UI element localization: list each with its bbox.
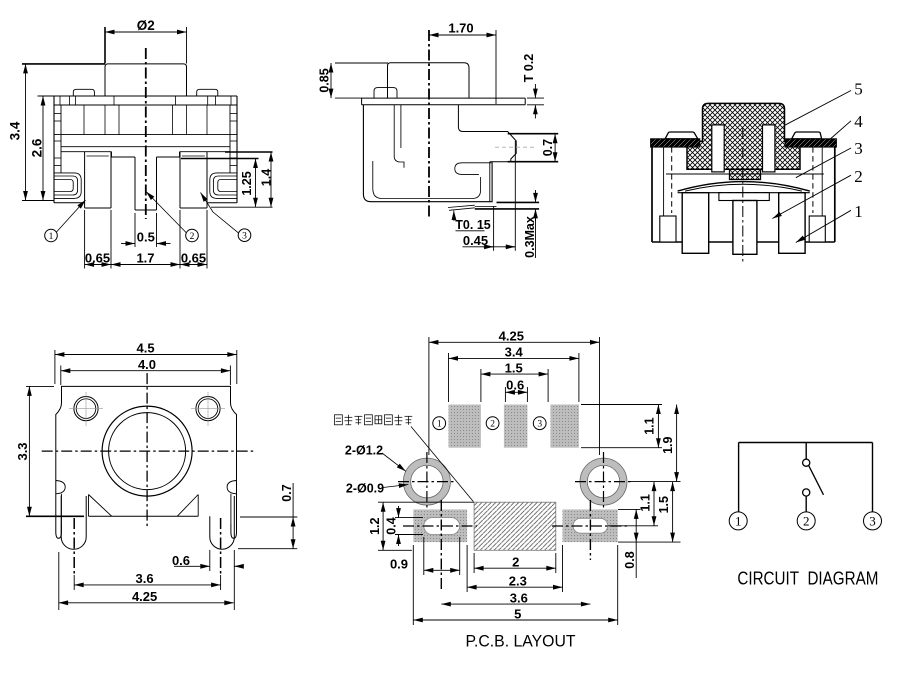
svg-text:1.1: 1.1 bbox=[643, 417, 657, 434]
svg-text:1.5: 1.5 bbox=[505, 360, 523, 375]
svg-text:2-Ø0.9: 2-Ø0.9 bbox=[346, 482, 384, 496]
svg-text:1: 1 bbox=[735, 514, 742, 529]
svg-text:3: 3 bbox=[869, 514, 876, 529]
svg-text:3: 3 bbox=[854, 139, 863, 158]
svg-text:0.65: 0.65 bbox=[181, 251, 206, 266]
svg-text:3.3: 3.3 bbox=[15, 442, 30, 460]
svg-text:1: 1 bbox=[854, 202, 863, 221]
svg-text:0.7: 0.7 bbox=[280, 484, 294, 501]
svg-text:0.4: 0.4 bbox=[385, 517, 399, 534]
svg-text:5: 5 bbox=[854, 80, 863, 99]
svg-text:2: 2 bbox=[190, 232, 195, 242]
svg-text:2: 2 bbox=[854, 167, 863, 186]
svg-text:3: 3 bbox=[537, 420, 542, 430]
svg-text:0.6: 0.6 bbox=[506, 378, 524, 393]
svg-text:3.4: 3.4 bbox=[505, 345, 524, 360]
svg-text:0.5: 0.5 bbox=[137, 230, 155, 245]
svg-text:0.9: 0.9 bbox=[390, 557, 408, 572]
svg-text:Ø2: Ø2 bbox=[137, 18, 155, 33]
svg-text:4.0: 4.0 bbox=[138, 357, 156, 372]
svg-text:2: 2 bbox=[803, 514, 810, 529]
svg-text:P.C.B. LAYOUT: P.C.B. LAYOUT bbox=[466, 632, 576, 650]
svg-text:4: 4 bbox=[854, 112, 863, 131]
svg-text:3.6: 3.6 bbox=[510, 590, 528, 605]
svg-text:0.6: 0.6 bbox=[172, 553, 190, 568]
svg-text:0.7: 0.7 bbox=[541, 139, 555, 156]
svg-text:0.3Max: 0.3Max bbox=[523, 216, 537, 258]
svg-text:3.6: 3.6 bbox=[136, 571, 154, 586]
svg-text:CIRCUIT DIAGRAM: CIRCUIT DIAGRAM bbox=[737, 568, 878, 588]
svg-text:1.2: 1.2 bbox=[368, 517, 382, 534]
svg-text:1.9: 1.9 bbox=[661, 436, 675, 453]
svg-text:2: 2 bbox=[512, 554, 519, 569]
svg-text:0.8: 0.8 bbox=[623, 551, 637, 568]
svg-text:1.4: 1.4 bbox=[260, 169, 274, 186]
svg-text:2: 2 bbox=[490, 420, 495, 430]
svg-text:3: 3 bbox=[242, 232, 247, 242]
svg-text:0.85: 0.85 bbox=[318, 68, 332, 92]
svg-text:T0. 15: T0. 15 bbox=[455, 218, 490, 232]
svg-text:0.45: 0.45 bbox=[463, 233, 488, 248]
svg-text:1.7: 1.7 bbox=[136, 251, 154, 266]
svg-text:1.70: 1.70 bbox=[448, 21, 473, 36]
svg-text:2.6: 2.6 bbox=[29, 138, 44, 157]
svg-text:1.1: 1.1 bbox=[639, 494, 653, 511]
svg-text:4.5: 4.5 bbox=[137, 340, 155, 355]
svg-text:4.25: 4.25 bbox=[499, 328, 524, 343]
svg-text:3.4: 3.4 bbox=[7, 121, 22, 140]
svg-text:1.5: 1.5 bbox=[657, 496, 671, 513]
svg-text:1: 1 bbox=[437, 420, 442, 430]
svg-text:1: 1 bbox=[49, 232, 54, 242]
svg-text:1.25: 1.25 bbox=[240, 171, 254, 195]
svg-text:T 0.2: T 0.2 bbox=[522, 54, 536, 83]
svg-text:5: 5 bbox=[514, 606, 521, 621]
svg-text:0.65: 0.65 bbox=[85, 251, 110, 266]
svg-text:2-Ø1.2: 2-Ø1.2 bbox=[345, 444, 383, 458]
svg-text:4.25: 4.25 bbox=[132, 589, 157, 604]
svg-text:2.3: 2.3 bbox=[509, 574, 527, 589]
